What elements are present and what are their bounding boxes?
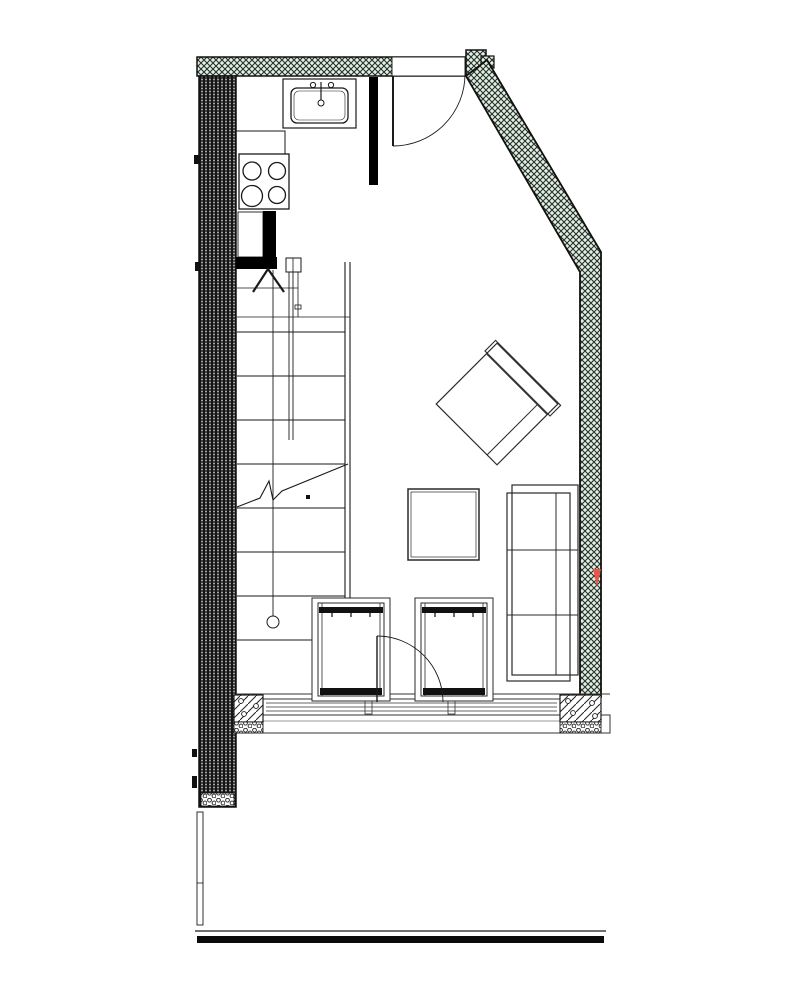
floor-plan-drawing: [0, 0, 800, 1000]
niche-wall-horizontal: [236, 257, 277, 269]
sill-band: [234, 715, 610, 733]
floor-plan-page: [0, 0, 800, 1000]
niche-wall-vertical: [263, 211, 276, 259]
chair-left: [312, 598, 390, 701]
break-line-dot: [306, 495, 310, 499]
chair-right: [415, 598, 493, 701]
paper-background: [0, 0, 800, 1000]
chair-back-bar: [319, 607, 383, 613]
corner-pier-left: [234, 695, 263, 733]
site-wall-line: [197, 812, 203, 925]
center-line-circle: [267, 616, 279, 628]
chair-back-bar: [422, 607, 486, 613]
corner-pier-right: [560, 695, 601, 733]
sofa: [507, 485, 578, 681]
chair-front-bar: [423, 688, 485, 695]
entry-partition-wall: [369, 77, 378, 185]
newel-post: [286, 258, 301, 272]
deck-edge-band: [197, 936, 604, 943]
left-wall-pebble-band: [201, 793, 234, 806]
entry-door-opening: [392, 57, 465, 76]
cooktop: [239, 154, 289, 209]
left-wall: [199, 76, 236, 807]
chair-front-bar: [320, 688, 382, 695]
coffee-table: [408, 489, 479, 560]
